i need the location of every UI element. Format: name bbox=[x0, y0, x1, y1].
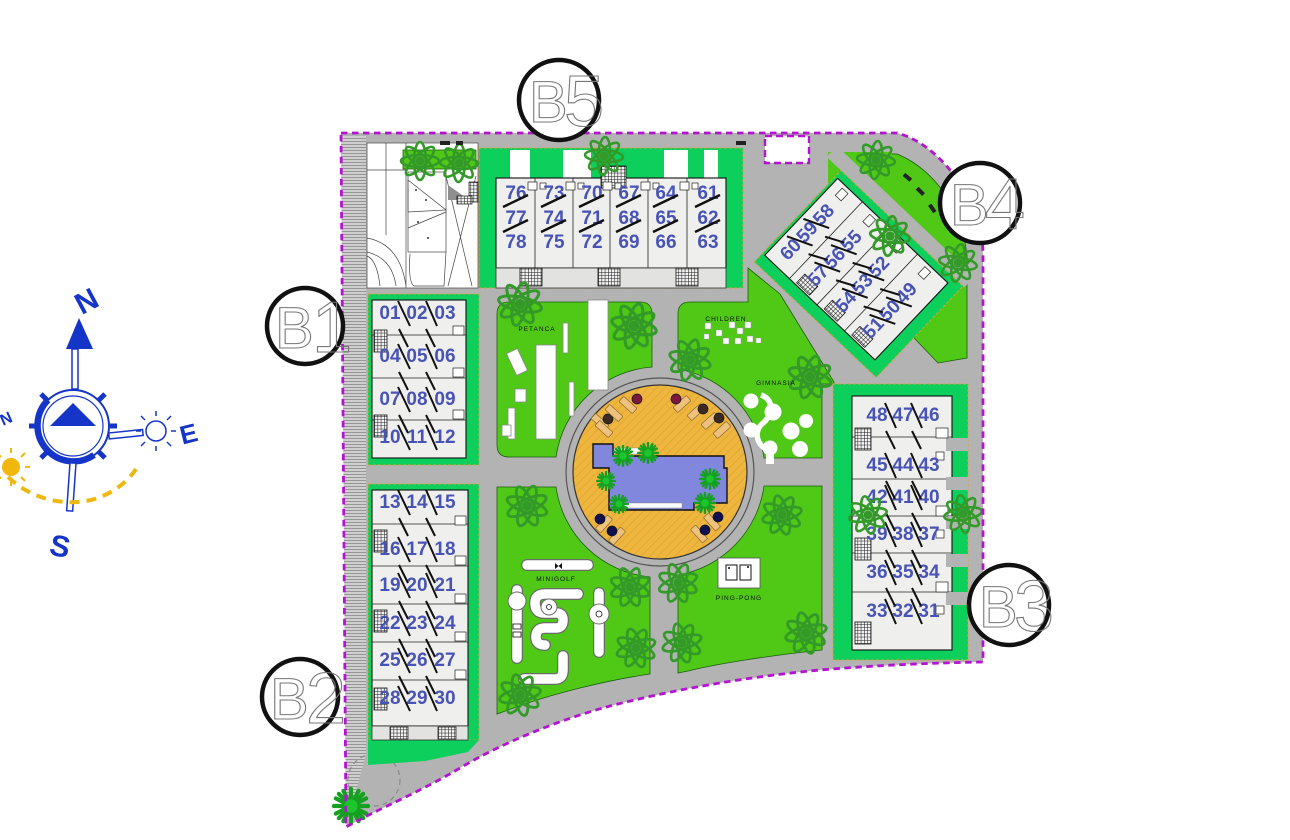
svg-text:19: 19 bbox=[379, 575, 400, 596]
svg-text:11: 11 bbox=[407, 427, 428, 448]
svg-text:CHILDREN: CHILDREN bbox=[705, 316, 746, 323]
svg-text:41: 41 bbox=[892, 487, 914, 508]
svg-text:35: 35 bbox=[892, 562, 914, 583]
svg-text:03: 03 bbox=[434, 303, 455, 324]
svg-text:PING-PONG: PING-PONG bbox=[716, 595, 762, 602]
svg-text:04: 04 bbox=[379, 346, 401, 367]
svg-text:26: 26 bbox=[406, 650, 427, 671]
svg-text:33: 33 bbox=[866, 601, 887, 622]
svg-text:75: 75 bbox=[543, 232, 565, 253]
svg-text:34: 34 bbox=[918, 562, 940, 583]
svg-text:B: B bbox=[270, 667, 309, 732]
svg-text:MINIGOLF: MINIGOLF bbox=[536, 576, 575, 583]
svg-text:28: 28 bbox=[379, 688, 400, 709]
svg-text:47: 47 bbox=[892, 405, 913, 426]
svg-text:B: B bbox=[950, 173, 989, 238]
svg-text:32: 32 bbox=[892, 601, 913, 622]
svg-text:4: 4 bbox=[985, 165, 1025, 245]
svg-text:B: B bbox=[979, 575, 1018, 640]
svg-text:40: 40 bbox=[918, 487, 939, 508]
svg-text:12: 12 bbox=[434, 427, 455, 448]
svg-text:31: 31 bbox=[918, 601, 940, 622]
svg-text:46: 46 bbox=[918, 405, 939, 426]
svg-text:17: 17 bbox=[406, 539, 427, 560]
svg-text:18: 18 bbox=[434, 539, 455, 560]
svg-text:21: 21 bbox=[434, 575, 456, 596]
svg-text:GIMNASIA: GIMNASIA bbox=[756, 380, 796, 387]
svg-text:36: 36 bbox=[866, 562, 887, 583]
svg-text:10: 10 bbox=[379, 427, 400, 448]
svg-text:B: B bbox=[275, 296, 314, 361]
svg-text:13: 13 bbox=[379, 492, 400, 513]
svg-text:69: 69 bbox=[618, 232, 639, 253]
svg-text:05: 05 bbox=[406, 346, 428, 367]
svg-text:3: 3 bbox=[1014, 567, 1054, 647]
svg-text:B: B bbox=[529, 70, 568, 135]
svg-text:1: 1 bbox=[312, 288, 352, 368]
svg-text:29: 29 bbox=[406, 688, 427, 709]
svg-text:15: 15 bbox=[434, 492, 456, 513]
svg-text:44: 44 bbox=[892, 455, 914, 476]
svg-text:43: 43 bbox=[918, 455, 939, 476]
svg-text:24: 24 bbox=[434, 613, 456, 634]
svg-text:30: 30 bbox=[434, 688, 455, 709]
svg-text:78: 78 bbox=[505, 232, 526, 253]
svg-text:23: 23 bbox=[406, 613, 427, 634]
svg-text:37: 37 bbox=[918, 524, 939, 545]
svg-text:09: 09 bbox=[434, 389, 455, 410]
svg-text:38: 38 bbox=[892, 524, 913, 545]
svg-text:48: 48 bbox=[866, 405, 887, 426]
svg-text:20: 20 bbox=[406, 575, 427, 596]
svg-text:06: 06 bbox=[434, 346, 455, 367]
svg-text:07: 07 bbox=[379, 389, 400, 410]
svg-text:45: 45 bbox=[866, 455, 888, 476]
svg-text:14: 14 bbox=[406, 492, 428, 513]
svg-text:72: 72 bbox=[581, 232, 602, 253]
svg-text:27: 27 bbox=[434, 650, 455, 671]
svg-text:01: 01 bbox=[379, 303, 401, 324]
svg-text:66: 66 bbox=[655, 232, 676, 253]
svg-text:5: 5 bbox=[564, 62, 604, 142]
svg-text:02: 02 bbox=[406, 303, 427, 324]
svg-text:2: 2 bbox=[306, 659, 346, 739]
svg-text:16: 16 bbox=[379, 539, 400, 560]
svg-text:22: 22 bbox=[379, 613, 400, 634]
svg-text:08: 08 bbox=[406, 389, 427, 410]
svg-text:PETANCA: PETANCA bbox=[518, 326, 555, 333]
svg-text:25: 25 bbox=[379, 650, 401, 671]
svg-text:63: 63 bbox=[697, 232, 718, 253]
